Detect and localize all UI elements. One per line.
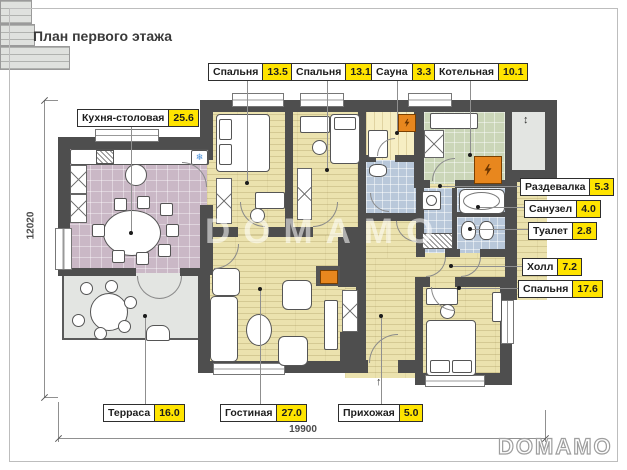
dining-chair	[166, 224, 179, 237]
terrace-chair	[124, 296, 137, 309]
dining-chair	[136, 252, 149, 265]
lightning-icon	[402, 117, 412, 129]
room-label-sauna: Сауна 3.3	[371, 63, 436, 81]
leader-dot	[457, 286, 461, 290]
watermark: DOMAMO	[205, 212, 446, 252]
leader-line	[397, 79, 398, 133]
wall	[455, 277, 512, 287]
bidet	[479, 221, 494, 240]
room-label-hall: Холл 7.2	[522, 258, 582, 276]
pillow	[219, 119, 232, 140]
leader-dot	[449, 264, 453, 268]
terrace-chair	[72, 314, 85, 327]
leader-dot	[438, 184, 442, 188]
room-label-bathroom: Санузел 4.0	[524, 200, 601, 218]
room-area-badge: 17.6	[572, 281, 601, 297]
room-name: Кухня-столовая	[78, 110, 168, 126]
leader-dot	[143, 314, 147, 318]
room-area-badge: 2.8	[572, 223, 596, 239]
brand-logo: DOMAMO	[498, 434, 613, 460]
armchair	[212, 268, 240, 296]
pillow	[334, 117, 356, 130]
room-name: Холл	[523, 259, 557, 275]
room-area-badge: 5.3	[589, 179, 613, 195]
leader-dot	[129, 231, 133, 235]
dining-chair	[112, 250, 125, 263]
wall	[180, 268, 200, 276]
leader-line	[478, 207, 524, 208]
room-label-living: Гостиная 27.0	[220, 404, 307, 422]
room-label-terrace: Терраса 16.0	[103, 404, 185, 422]
tv-console	[324, 300, 338, 350]
boiler-unit-icon	[474, 156, 502, 184]
leader-line	[381, 316, 382, 404]
dimension-value-vertical: 12020	[26, 203, 37, 249]
room-label-kitchen: Кухня-столовая 25.6	[77, 109, 199, 127]
window	[213, 363, 285, 375]
wall	[340, 332, 356, 373]
leader-line	[459, 288, 518, 289]
sink	[369, 164, 387, 177]
dining-chair	[137, 196, 150, 209]
tv-panel	[492, 292, 502, 322]
terrace-chair	[94, 327, 107, 340]
washing-machine-door	[426, 195, 437, 206]
room-name: Спальня	[292, 64, 345, 80]
room-name: Раздевалка	[521, 179, 589, 195]
floor-porch	[512, 112, 545, 170]
dining-chair	[160, 203, 173, 216]
window	[95, 129, 159, 142]
leader-line	[260, 289, 261, 404]
dining-chair	[92, 224, 105, 237]
window	[501, 300, 514, 344]
desk	[300, 116, 330, 133]
dimension-line-horizontal	[58, 438, 546, 439]
leader-line	[327, 79, 328, 170]
leader-line	[131, 126, 132, 233]
kitchen-cabinet	[70, 165, 87, 194]
armchair	[282, 280, 312, 310]
room-label-bedroom3: Спальня 17.6	[518, 280, 603, 298]
wall	[505, 112, 512, 172]
room-area-badge: 7.2	[557, 259, 581, 275]
room-area-badge: 16.0	[154, 405, 183, 421]
wall	[198, 270, 210, 373]
leader-dot	[395, 131, 399, 135]
fireplace-firebox	[320, 270, 338, 284]
floor-plan-canvas: План первого этажа ↕ ↑	[0, 0, 627, 470]
pillow	[219, 144, 232, 165]
room-label-toilet: Туалет 2.8	[528, 222, 597, 240]
room-name: Прихожая	[339, 405, 399, 421]
room-label-dressing: Раздевалка 5.3	[520, 178, 614, 196]
room-area-badge: 13.5	[262, 64, 291, 80]
room-name: Туалет	[529, 223, 572, 239]
leader-dot	[468, 227, 472, 231]
dimension-value-horizontal: 19900	[271, 424, 335, 435]
leader-line	[470, 79, 471, 155]
leader-line	[247, 79, 248, 183]
room-name: Спальня	[209, 64, 262, 80]
storage-cabinet	[424, 130, 444, 158]
wall	[445, 249, 460, 257]
fridge-icon: ❄	[191, 150, 208, 165]
room-name: Спальня	[519, 281, 572, 297]
room-label-boiler: Котельная 10.1	[434, 63, 528, 81]
closet	[342, 290, 358, 332]
leader-line	[470, 229, 528, 230]
armchair	[278, 336, 308, 366]
wall	[395, 155, 416, 162]
dimension-extension	[44, 397, 58, 398]
coffee-table	[246, 314, 272, 346]
room-name: Санузел	[525, 201, 576, 217]
room-label-bedroom2: Спальня 13.1	[291, 63, 376, 81]
dining-chair	[158, 244, 171, 257]
leader-line	[145, 316, 146, 404]
wall	[356, 360, 368, 373]
kitchen-chair	[125, 164, 147, 186]
leader-dot	[476, 205, 480, 209]
window	[300, 93, 344, 107]
lightning-icon	[481, 161, 495, 179]
leader-dot	[245, 181, 249, 185]
porch-direction-arrow: ↕	[523, 115, 529, 126]
wall	[480, 249, 517, 257]
page-title: План первого этажа	[33, 28, 172, 44]
terrace-chair	[80, 282, 93, 295]
leader-line	[451, 266, 522, 267]
room-label-entry: Прихожая 5.0	[338, 404, 423, 422]
room-name: Гостиная	[221, 405, 276, 421]
terrace-grill	[146, 325, 170, 341]
terrace-chair	[105, 280, 118, 293]
kitchen-stove	[96, 150, 114, 164]
room-area-badge: 10.1	[498, 64, 527, 80]
kitchen-cabinet	[70, 194, 87, 223]
window	[425, 375, 485, 387]
room-area-badge: 5.0	[399, 405, 423, 421]
room-name: Сауна	[372, 64, 412, 80]
room-area-badge: 25.6	[168, 110, 197, 126]
room-area-badge: 4.0	[576, 201, 600, 217]
window	[55, 228, 72, 270]
leader-dot	[258, 287, 262, 291]
leader-dot	[379, 314, 383, 318]
room-name: Терраса	[104, 405, 154, 421]
chair	[312, 140, 327, 155]
wall	[398, 360, 418, 373]
sofa	[210, 296, 238, 362]
window	[408, 93, 452, 107]
room-name: Котельная	[435, 64, 498, 80]
dimension-extension	[44, 100, 58, 101]
leader-dot	[325, 168, 329, 172]
room-label-bedroom1: Спальня 13.5	[208, 63, 293, 81]
window	[232, 93, 284, 107]
dimension-line-vertical	[44, 100, 45, 398]
room-area-badge: 27.0	[276, 405, 305, 421]
dining-chair	[114, 198, 127, 211]
pillow	[452, 360, 472, 373]
room-area-badge: 3.3	[412, 64, 436, 80]
pillow	[430, 360, 450, 373]
leader-dot	[468, 153, 472, 157]
sauna-stove-icon	[398, 114, 416, 132]
terrace-chair	[118, 320, 131, 333]
wall	[545, 100, 557, 172]
leader-line	[440, 186, 520, 187]
